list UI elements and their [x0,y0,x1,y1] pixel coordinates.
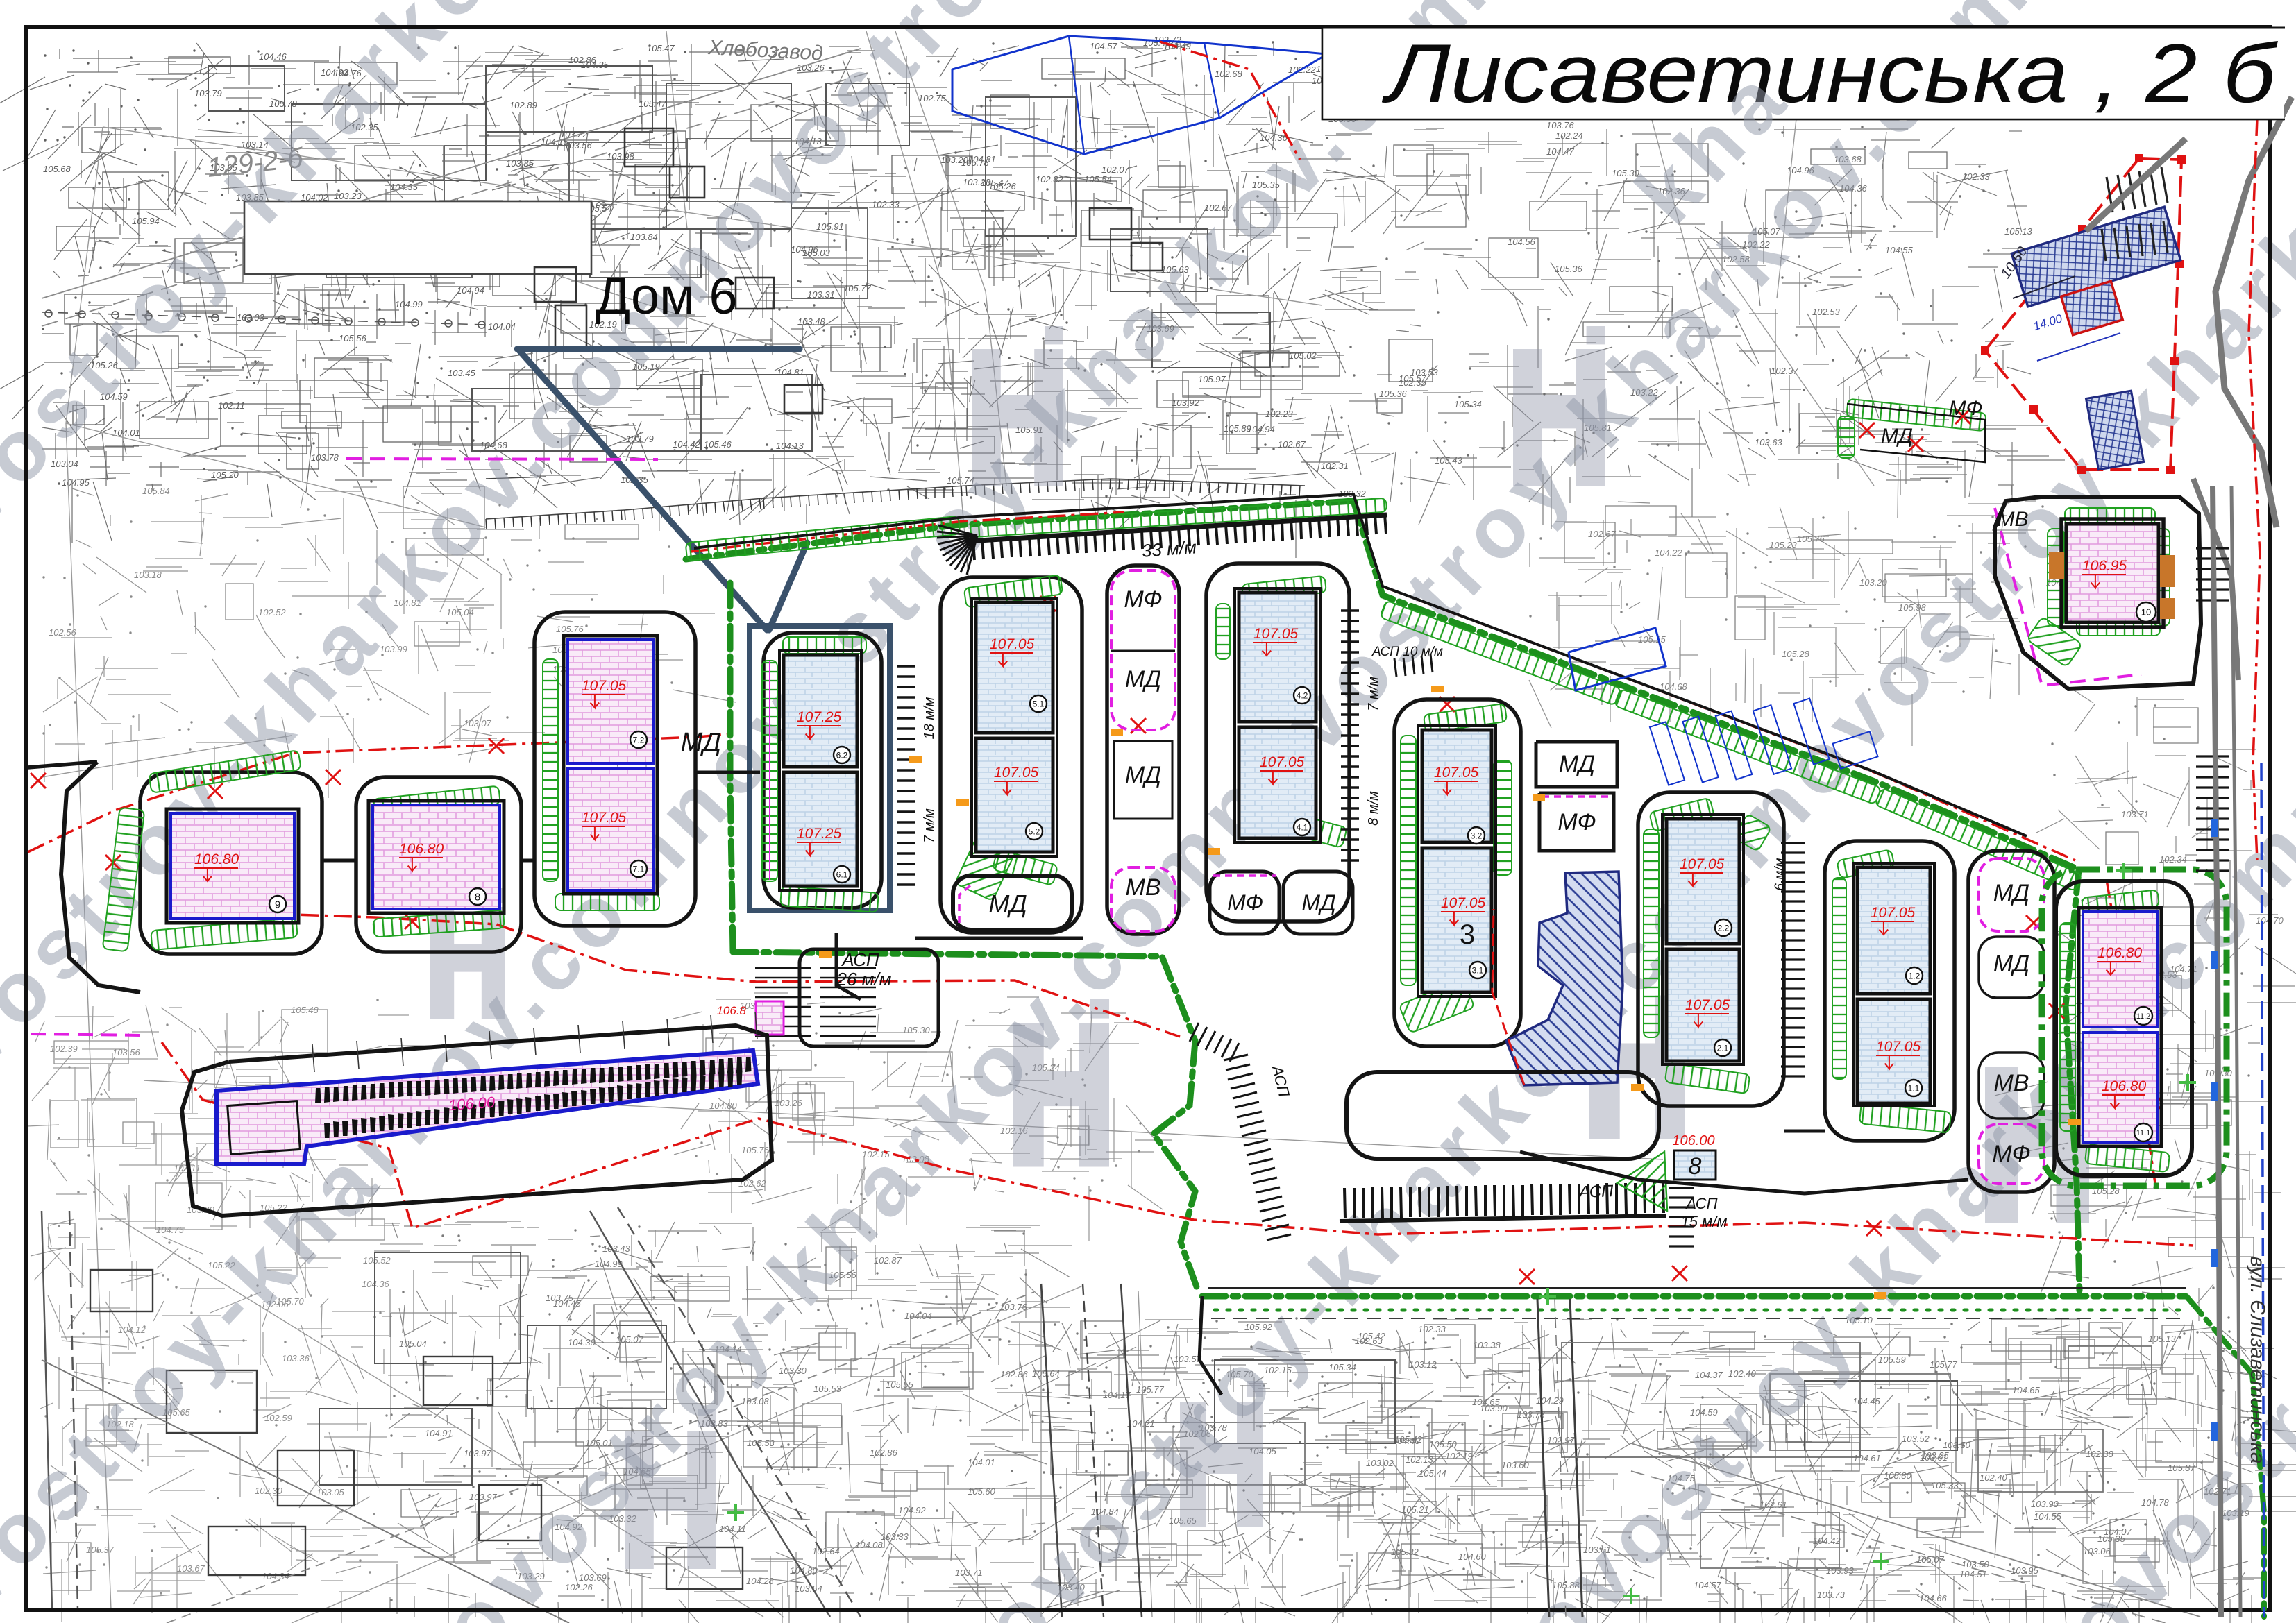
svg-text:104.47: 104.47 [1546,146,1575,157]
svg-text:18 м/м: 18 м/м [922,697,937,739]
svg-text:105.13: 105.13 [2004,226,2033,237]
svg-text:4.1: 4.1 [1297,822,1308,832]
svg-text:104.81: 104.81 [968,154,996,164]
svg-text:МФ: МФ [1227,890,1263,915]
svg-text:103.20: 103.20 [1859,577,1888,588]
svg-text:103.71: 103.71 [2121,809,2149,819]
svg-text:105.59: 105.59 [1878,1354,1906,1365]
svg-text:104.37: 104.37 [1695,1370,1723,1380]
svg-text:103.12: 103.12 [1409,1359,1437,1370]
svg-text:10: 10 [2141,607,2151,618]
svg-text:102.38: 102.38 [2086,1449,2114,1459]
svg-text:102.64: 102.64 [812,1546,840,1556]
svg-text:102.82: 102.82 [1036,174,1064,185]
svg-text:104.30: 104.30 [568,1337,596,1348]
svg-text:7.2: 7.2 [633,735,645,745]
svg-text:103.45: 103.45 [448,368,476,378]
svg-text:105.53: 105.53 [747,1438,775,1448]
svg-text:106.8: 106.8 [716,1004,746,1017]
svg-text:МВ: МВ [1998,508,2029,531]
svg-text:7.1: 7.1 [633,864,645,874]
svg-text:102.07: 102.07 [1101,164,1130,175]
svg-text:105.04: 105.04 [446,607,474,618]
svg-text:105.36: 105.36 [1379,389,1408,399]
svg-text:103.97: 103.97 [464,1448,492,1459]
svg-text:АСП 10 м/м: АСП 10 м/м [1371,645,1443,659]
svg-text:103.73: 103.73 [1817,1590,1846,1600]
svg-text:107.05: 107.05 [1260,754,1305,770]
svg-text:106.80: 106.80 [2097,945,2143,961]
svg-text:103.79: 103.79 [626,434,654,444]
svg-text:103.63: 103.63 [1755,437,1783,448]
svg-text:104.22: 104.22 [1655,547,1683,558]
svg-text:105.68: 105.68 [43,164,71,174]
svg-text:6.1: 6.1 [836,869,848,879]
svg-text:107.05: 107.05 [582,678,627,694]
svg-text:104.08: 104.08 [855,1540,884,1550]
svg-text:102.23: 102.23 [1265,409,1294,419]
svg-text:102.52: 102.52 [258,607,287,618]
svg-text:102.68: 102.68 [1215,69,1243,79]
svg-text:103.53: 103.53 [1410,367,1439,377]
svg-text:104.04: 104.04 [488,321,516,332]
svg-text:104.65: 104.65 [2012,1385,2041,1395]
svg-text:1.2: 1.2 [1909,971,1921,980]
svg-text:МД: МД [1559,751,1595,777]
svg-text:105.02: 105.02 [1289,350,1317,361]
svg-text:104.94: 104.94 [457,285,484,296]
svg-text:МВ: МВ [1126,874,1161,901]
svg-text:МД: МД [1125,666,1161,692]
svg-text:105.32: 105.32 [1391,1547,1419,1557]
svg-text:МД: МД [1993,880,2029,906]
svg-text:103.78: 103.78 [311,452,339,463]
svg-text:МД: МД [1881,425,1913,448]
svg-text:105.53: 105.53 [813,1384,842,1394]
svg-text:102.39: 102.39 [50,1044,78,1054]
svg-text:9: 9 [275,899,280,910]
svg-text:103.26: 103.26 [775,1098,803,1108]
svg-text:103.85: 103.85 [506,158,534,169]
svg-text:103.07: 103.07 [464,718,492,729]
svg-text:103.18: 103.18 [134,570,162,580]
svg-text:104.65: 104.65 [1472,1397,1501,1407]
svg-text:103.30: 103.30 [779,1366,807,1376]
svg-text:103.97: 103.97 [469,1492,498,1502]
svg-text:104.45: 104.45 [1852,1396,1881,1407]
svg-text:105.77: 105.77 [1136,1384,1165,1395]
svg-text:103.56: 103.56 [112,1047,141,1057]
svg-text:2.2: 2.2 [1718,923,1730,933]
svg-text:104.68: 104.68 [1660,681,1688,692]
svg-text:103.61: 103.61 [1920,1452,1948,1463]
svg-text:103.93: 103.93 [1826,1565,1855,1576]
svg-text:105.91: 105.91 [816,221,844,232]
svg-text:106.00: 106.00 [448,1094,496,1114]
svg-text:102.86: 102.86 [870,1447,898,1458]
svg-text:МД: МД [988,890,1027,918]
svg-text:Дом 6: Дом 6 [596,267,738,325]
svg-text:107.05: 107.05 [1680,856,1725,872]
svg-text:106.80: 106.80 [399,841,444,857]
svg-text:МВ: МВ [1994,1070,2029,1096]
svg-text:105.60: 105.60 [968,1486,996,1497]
svg-text:104.57: 104.57 [1090,41,1118,51]
svg-text:105.46: 105.46 [704,439,732,450]
svg-text:104.57: 104.57 [1694,1580,1722,1590]
svg-text:103.54: 103.54 [795,1583,822,1594]
svg-text:105.34: 105.34 [1328,1362,1356,1373]
svg-text:107.05: 107.05 [990,636,1035,652]
svg-text:104.04: 104.04 [904,1311,932,1321]
svg-text:103.36: 103.36 [282,1353,310,1363]
svg-text:102.30: 102.30 [255,1486,283,1496]
svg-text:103.60: 103.60 [1501,1460,1530,1470]
svg-text:102.67: 102.67 [1278,439,1306,450]
svg-text:102.13: 102.13 [1406,1454,1434,1465]
svg-text:107.05: 107.05 [1685,997,1730,1013]
svg-text:11.1: 11.1 [2136,1129,2151,1137]
svg-text:105.21: 105.21 [1401,1504,1429,1515]
svg-text:Лисаветинська , 2 б: Лисаветинська , 2 б [1381,27,2279,120]
svg-text:102.11: 102.11 [218,400,245,411]
svg-text:105.76: 105.76 [741,1145,770,1155]
svg-text:3: 3 [1460,919,1475,950]
svg-text:104.66: 104.66 [1919,1593,1948,1604]
svg-text:105.34: 105.34 [1454,399,1482,409]
svg-text:103.92: 103.92 [1172,398,1200,408]
svg-text:105.94: 105.94 [132,216,160,226]
svg-text:102.89: 102.89 [509,100,537,110]
svg-text:102.75: 102.75 [918,93,947,103]
svg-text:105.56: 105.56 [339,333,367,343]
svg-text:102.86: 102.86 [1000,1369,1029,1379]
svg-text:102.53: 102.53 [1812,307,1841,317]
svg-text:26 м/м: 26 м/м [836,969,891,989]
svg-text:103.33: 103.33 [881,1531,909,1542]
svg-text:102.33: 102.33 [1962,171,1991,182]
svg-text:102.33: 102.33 [872,199,900,210]
svg-text:105.15: 105.15 [1638,634,1666,645]
svg-text:105.47: 105.47 [647,43,675,53]
svg-text:106.80: 106.80 [194,851,239,867]
svg-text:102.19: 102.19 [1445,1451,1473,1461]
svg-text:107.05: 107.05 [1253,626,1299,642]
svg-text:8: 8 [1689,1153,1702,1180]
svg-text:105.43: 105.43 [1435,455,1463,466]
svg-text:105.33: 105.33 [1931,1480,1959,1490]
svg-text:105.36: 105.36 [1555,264,1583,274]
svg-text:104.34: 104.34 [262,1571,289,1581]
svg-text:103.67: 103.67 [177,1563,205,1574]
svg-text:104.55: 104.55 [1885,245,1914,255]
svg-text:107.05: 107.05 [1871,905,1916,921]
svg-text:105.37: 105.37 [86,1545,115,1555]
svg-text:МД: МД [1993,951,2029,977]
svg-text:105.20: 105.20 [211,470,239,480]
svg-text:7 м/м: 7 м/м [922,808,937,843]
svg-text:104.99: 104.99 [395,299,423,309]
svg-text:105.80: 105.80 [1884,1470,1912,1481]
svg-text:АСП: АСП [1578,1182,1614,1202]
svg-text:105.76: 105.76 [1797,534,1825,544]
svg-text:МФ: МФ [1558,809,1596,835]
svg-text:104.60: 104.60 [1458,1552,1487,1562]
svg-text:105.84: 105.84 [142,486,170,496]
svg-text:6 м/м: 6 м/м [1773,858,1787,890]
svg-text:15 м/м: 15 м/м [1681,1213,1728,1230]
svg-text:103.23: 103.23 [334,191,362,201]
svg-text:105.03: 105.03 [802,248,831,258]
svg-text:105.04: 105.04 [399,1339,427,1349]
svg-text:105.30: 105.30 [902,1025,931,1035]
svg-text:104.91: 104.91 [425,1428,453,1438]
svg-text:105.23: 105.23 [1769,540,1798,550]
svg-text:103.02: 103.02 [1366,1458,1394,1468]
svg-text:1.1: 1.1 [1908,1083,1920,1093]
svg-text:МД: МД [681,728,721,757]
svg-text:105.77: 105.77 [1930,1359,1958,1370]
svg-text:103.71: 103.71 [955,1567,983,1578]
svg-text:103.48: 103.48 [797,316,826,327]
svg-text:5.2: 5.2 [1029,826,1040,836]
svg-text:103.38: 103.38 [1473,1340,1501,1350]
svg-text:104.35: 104.35 [581,60,609,70]
svg-text:107.05: 107.05 [1434,765,1479,781]
svg-text:104.75: 104.75 [156,1225,185,1235]
svg-text:104.11: 104.11 [719,1524,746,1534]
svg-text:АСП: АСП [841,949,879,970]
svg-text:105.52: 105.52 [363,1255,391,1266]
svg-text:105.76: 105.76 [556,624,584,634]
svg-text:102.33: 102.33 [1418,1324,1446,1334]
svg-text:2.1: 2.1 [1717,1043,1729,1053]
svg-text:104.80: 104.80 [709,1101,738,1111]
svg-text:107.05: 107.05 [1876,1039,1921,1055]
svg-text:105.07: 105.07 [616,1334,644,1345]
svg-text:104.45: 104.45 [553,1298,582,1309]
svg-text:104.81: 104.81 [777,367,804,377]
svg-text:6.2: 6.2 [836,750,848,760]
svg-text:104.42: 104.42 [1813,1536,1841,1546]
svg-text:102.24: 102.24 [1555,130,1583,141]
svg-text:102.40: 102.40 [1980,1472,2008,1483]
svg-text:104.36: 104.36 [362,1279,390,1289]
svg-text:8 м/м: 8 м/м [1366,791,1381,826]
svg-text:103.05: 103.05 [316,1487,345,1497]
svg-text:103.43: 103.43 [602,1243,631,1254]
svg-text:102.67: 102.67 [1588,529,1617,539]
svg-text:5.1: 5.1 [1033,699,1045,708]
svg-text:107.05: 107.05 [994,765,1039,781]
svg-text:103.52: 103.52 [1902,1434,1930,1444]
svg-text:105.50: 105.50 [1429,1439,1458,1450]
svg-text:105.55: 105.55 [886,1379,914,1390]
svg-text:МФ: МФ [1992,1141,2030,1167]
svg-text:104.46: 104.46 [259,51,287,62]
svg-text:106.95: 106.95 [2082,558,2127,574]
svg-text:МД: МД [1125,762,1161,788]
svg-text:3.2: 3.2 [1471,831,1483,840]
svg-text:104.94: 104.94 [1247,424,1275,434]
svg-text:104.55: 104.55 [2034,1511,2062,1522]
svg-text:104.56: 104.56 [1508,237,1536,247]
svg-text:102.56: 102.56 [49,627,77,638]
svg-text:3.1: 3.1 [1472,965,1484,975]
svg-text:107.05: 107.05 [1441,895,1486,911]
svg-text:102.34: 102.34 [2159,854,2187,865]
svg-text:МФ: МФ [1124,586,1162,613]
svg-text:АСП: АСП [1685,1195,1717,1212]
svg-text:104.01: 104.01 [968,1457,995,1468]
svg-text:7 м/м: 7 м/м [1366,677,1381,711]
svg-text:105.48: 105.48 [291,1005,319,1015]
svg-text:МФ: МФ [1949,397,1983,420]
svg-text:105.28: 105.28 [1782,649,1810,659]
svg-text:104.92: 104.92 [898,1505,927,1515]
svg-text:103.98: 103.98 [607,151,635,162]
svg-text:4.2: 4.2 [1297,690,1308,700]
svg-text:104.28: 104.28 [746,1576,775,1586]
svg-text:105.13: 105.13 [2148,1334,2177,1344]
svg-text:106.00: 106.00 [1672,1133,1714,1148]
svg-text:104.95: 104.95 [62,477,90,488]
svg-text:104.13: 104.13 [776,441,804,451]
svg-text:102.59: 102.59 [264,1413,292,1423]
svg-text:вул. Єлизаветинська: вул. Єлизаветинська [2246,1256,2269,1463]
svg-text:105.54: 105.54 [1084,174,1112,185]
svg-text:106.80: 106.80 [2102,1078,2147,1094]
svg-text:104.61: 104.61 [1853,1453,1881,1463]
svg-text:107.05: 107.05 [582,810,627,826]
svg-text:105.44: 105.44 [1419,1468,1446,1479]
svg-text:33 м/м: 33 м/м [1141,536,1197,561]
svg-text:104.42: 104.42 [673,439,701,450]
svg-text:105.97: 105.97 [1198,374,1226,384]
svg-text:102.63: 102.63 [1355,1336,1383,1346]
svg-text:107.25: 107.25 [797,709,842,725]
svg-text:102.31: 102.31 [1321,461,1349,471]
svg-text:105.26: 105.26 [988,181,1017,192]
svg-text:11.2: 11.2 [2136,1012,2151,1021]
svg-text:105.42: 105.42 [1394,1434,1423,1445]
svg-text:103.90: 103.90 [2031,1499,2059,1509]
svg-text:8: 8 [475,891,480,903]
svg-text:103.95: 103.95 [2011,1565,2039,1576]
svg-text:103.50: 103.50 [1961,1559,1990,1570]
svg-text:МД: МД [1301,890,1335,915]
svg-text:107.25: 107.25 [797,826,842,842]
